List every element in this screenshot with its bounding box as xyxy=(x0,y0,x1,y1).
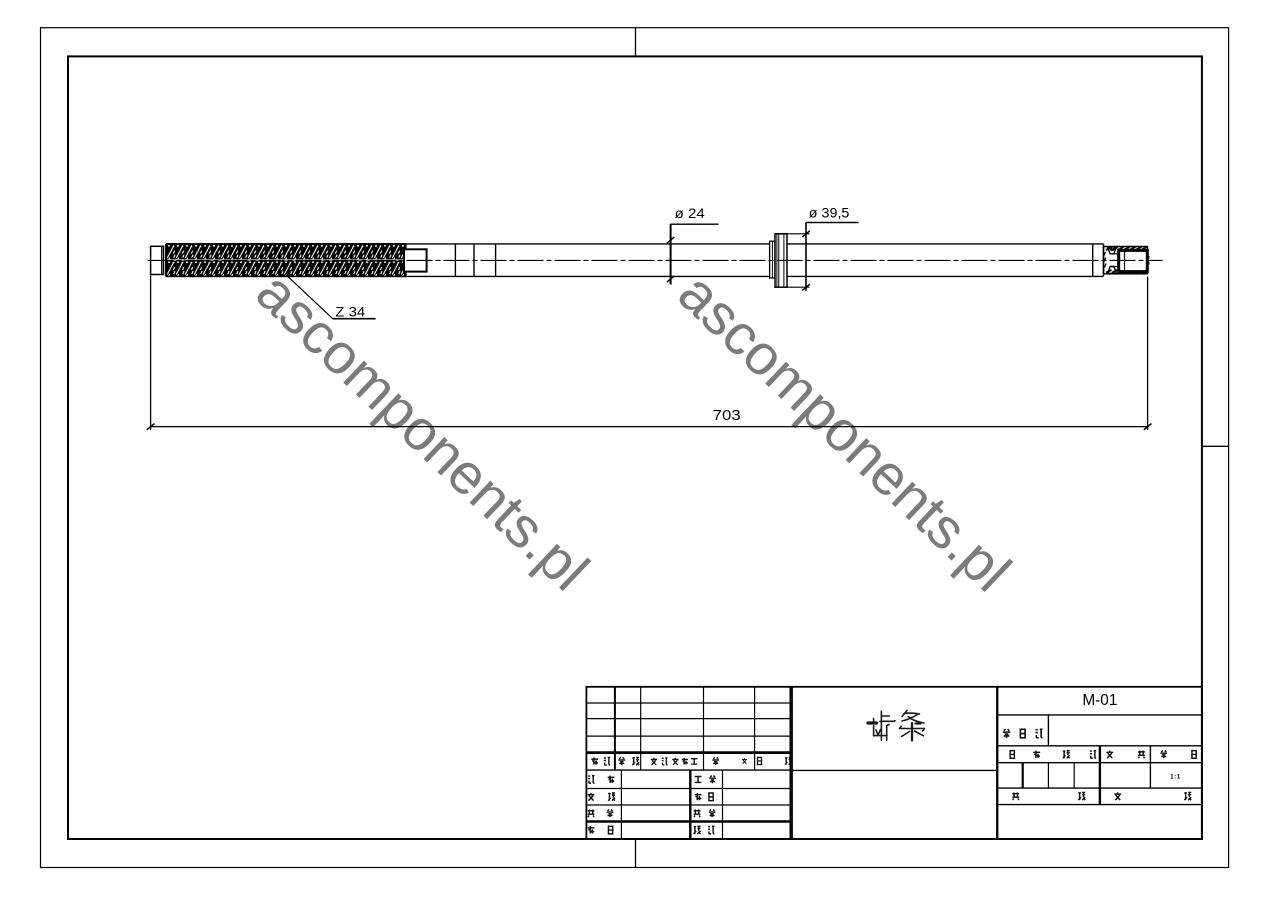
svg-text:703: 703 xyxy=(713,408,741,424)
svg-text:ø 24: ø 24 xyxy=(675,205,705,221)
svg-text:Z 34: Z 34 xyxy=(335,304,365,320)
svg-text:M-01: M-01 xyxy=(1082,692,1117,709)
svg-text:1:1: 1:1 xyxy=(1170,774,1181,780)
svg-text:ø 39,5: ø 39,5 xyxy=(809,205,850,221)
